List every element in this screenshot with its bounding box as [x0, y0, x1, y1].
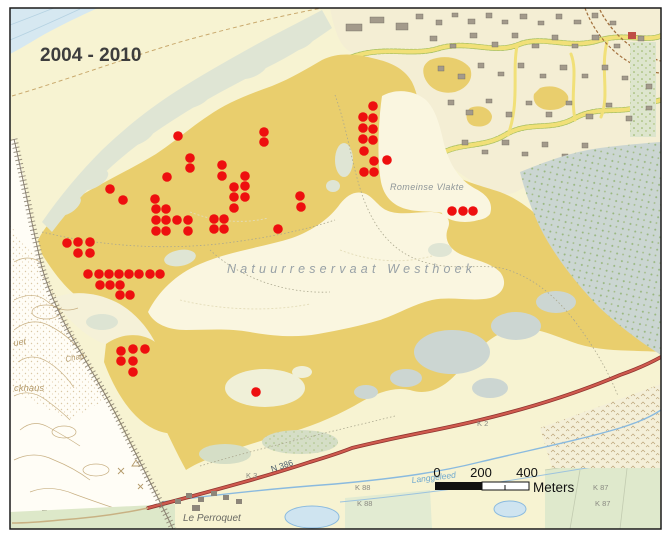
- observation-dot: [124, 269, 134, 279]
- observation-dot: [116, 346, 126, 356]
- observation-dot: [116, 356, 126, 366]
- observation-dot: [259, 127, 269, 137]
- observation-dot: [125, 290, 135, 300]
- observation-dot: [161, 215, 171, 225]
- observation-dot: [240, 171, 250, 181]
- observation-dot: [458, 206, 468, 216]
- observation-dot: [240, 192, 250, 202]
- scrub-pocket: [335, 143, 353, 177]
- observation-dot: [229, 192, 239, 202]
- map-window: Natuurreservaat Westhoek Romeinse Vlakte…: [0, 0, 670, 539]
- observation-dot: [217, 160, 227, 170]
- open-sand-south-2: [292, 366, 312, 378]
- church-building: [628, 32, 636, 39]
- observation-dot: [73, 237, 83, 247]
- observation-dot: [183, 215, 193, 225]
- observation-dot: [73, 248, 83, 258]
- scalebar-tick-0: 0: [433, 465, 440, 480]
- observation-dot: [183, 226, 193, 236]
- observation-dot: [369, 167, 379, 177]
- k2-label: K 2: [477, 419, 488, 428]
- observation-dot: [114, 269, 124, 279]
- observation-dot: [115, 280, 125, 290]
- open-sand-south: [225, 369, 305, 407]
- observation-dot: [83, 269, 93, 279]
- observation-dot: [118, 195, 128, 205]
- observation-dot: [105, 184, 115, 194]
- observation-dot: [295, 191, 305, 201]
- k87-label-2: K 87: [595, 499, 610, 508]
- observation-dot: [128, 344, 138, 354]
- map-title: 2004 - 2010: [40, 45, 141, 66]
- observation-dot: [368, 101, 378, 111]
- observation-dot: [151, 204, 161, 214]
- observation-dot: [128, 356, 138, 366]
- observation-dot: [219, 224, 229, 234]
- observation-dot: [359, 146, 369, 156]
- partial-label-uet: uet: [13, 336, 27, 348]
- observation-dot: [115, 290, 125, 300]
- observation-dot: [368, 124, 378, 134]
- observation-dot: [209, 214, 219, 224]
- observation-dot: [217, 171, 227, 181]
- observation-dot: [358, 112, 368, 122]
- map-canvas: Natuurreservaat Westhoek Romeinse Vlakte…: [0, 0, 670, 539]
- observation-dot: [240, 181, 250, 191]
- observation-dot: [162, 172, 172, 182]
- observation-dot: [151, 226, 161, 236]
- observation-dot: [359, 167, 369, 177]
- observation-dot: [447, 206, 457, 216]
- scalebar-tick-200: 200: [470, 465, 492, 480]
- scrub-west: [86, 314, 118, 330]
- observation-dot: [229, 182, 239, 192]
- observation-dot: [358, 134, 368, 144]
- observation-dot: [104, 269, 114, 279]
- observation-dot: [273, 224, 283, 234]
- observation-dot: [173, 131, 183, 141]
- reserve-label: Natuurreservaat Westhoek: [227, 262, 476, 276]
- observation-dot: [185, 163, 195, 173]
- observation-dot: [172, 215, 182, 225]
- observation-dot: [382, 155, 392, 165]
- observation-dot: [128, 367, 138, 377]
- observation-dot: [161, 204, 171, 214]
- scalebar-tick-400: 400: [516, 465, 538, 480]
- k88-label-2: K 88: [357, 499, 372, 508]
- observation-dot: [95, 280, 105, 290]
- partial-label-ckhaus: ckhaus: [14, 383, 44, 394]
- observation-dot: [358, 123, 368, 133]
- observation-dot: [140, 344, 150, 354]
- scrub-pocket-2: [326, 180, 340, 192]
- observation-dot: [185, 153, 195, 163]
- observation-dot: [85, 248, 95, 258]
- observation-dot: [251, 387, 261, 397]
- observation-dot: [296, 202, 306, 212]
- observation-dot: [85, 237, 95, 247]
- hamlet-label: Le Perroquet: [183, 513, 242, 524]
- k87-label-1: K 87: [593, 483, 608, 492]
- observation-dot: [368, 135, 378, 145]
- observation-dot: [219, 214, 229, 224]
- observation-dot: [94, 269, 104, 279]
- observation-dot: [259, 137, 269, 147]
- observation-dot: [209, 224, 219, 234]
- k88-label-1: K 88: [355, 483, 370, 492]
- observation-dot: [155, 269, 165, 279]
- scalebar-unit: Meters: [533, 480, 575, 495]
- k3-label: K 3: [246, 471, 257, 480]
- observation-dot: [368, 113, 378, 123]
- observation-dot: [161, 226, 171, 236]
- observation-dot: [150, 194, 160, 204]
- observation-dot: [229, 203, 239, 213]
- observation-dot: [145, 269, 155, 279]
- plain-label: Romeinse Vlakte: [390, 182, 464, 192]
- observation-dot: [151, 215, 161, 225]
- observation-dot: [369, 156, 379, 166]
- scalebar-black-segment: [435, 482, 482, 490]
- observation-dot: [468, 206, 478, 216]
- observation-dot: [105, 280, 115, 290]
- observation-dot: [62, 238, 72, 248]
- observation-dot: [134, 269, 144, 279]
